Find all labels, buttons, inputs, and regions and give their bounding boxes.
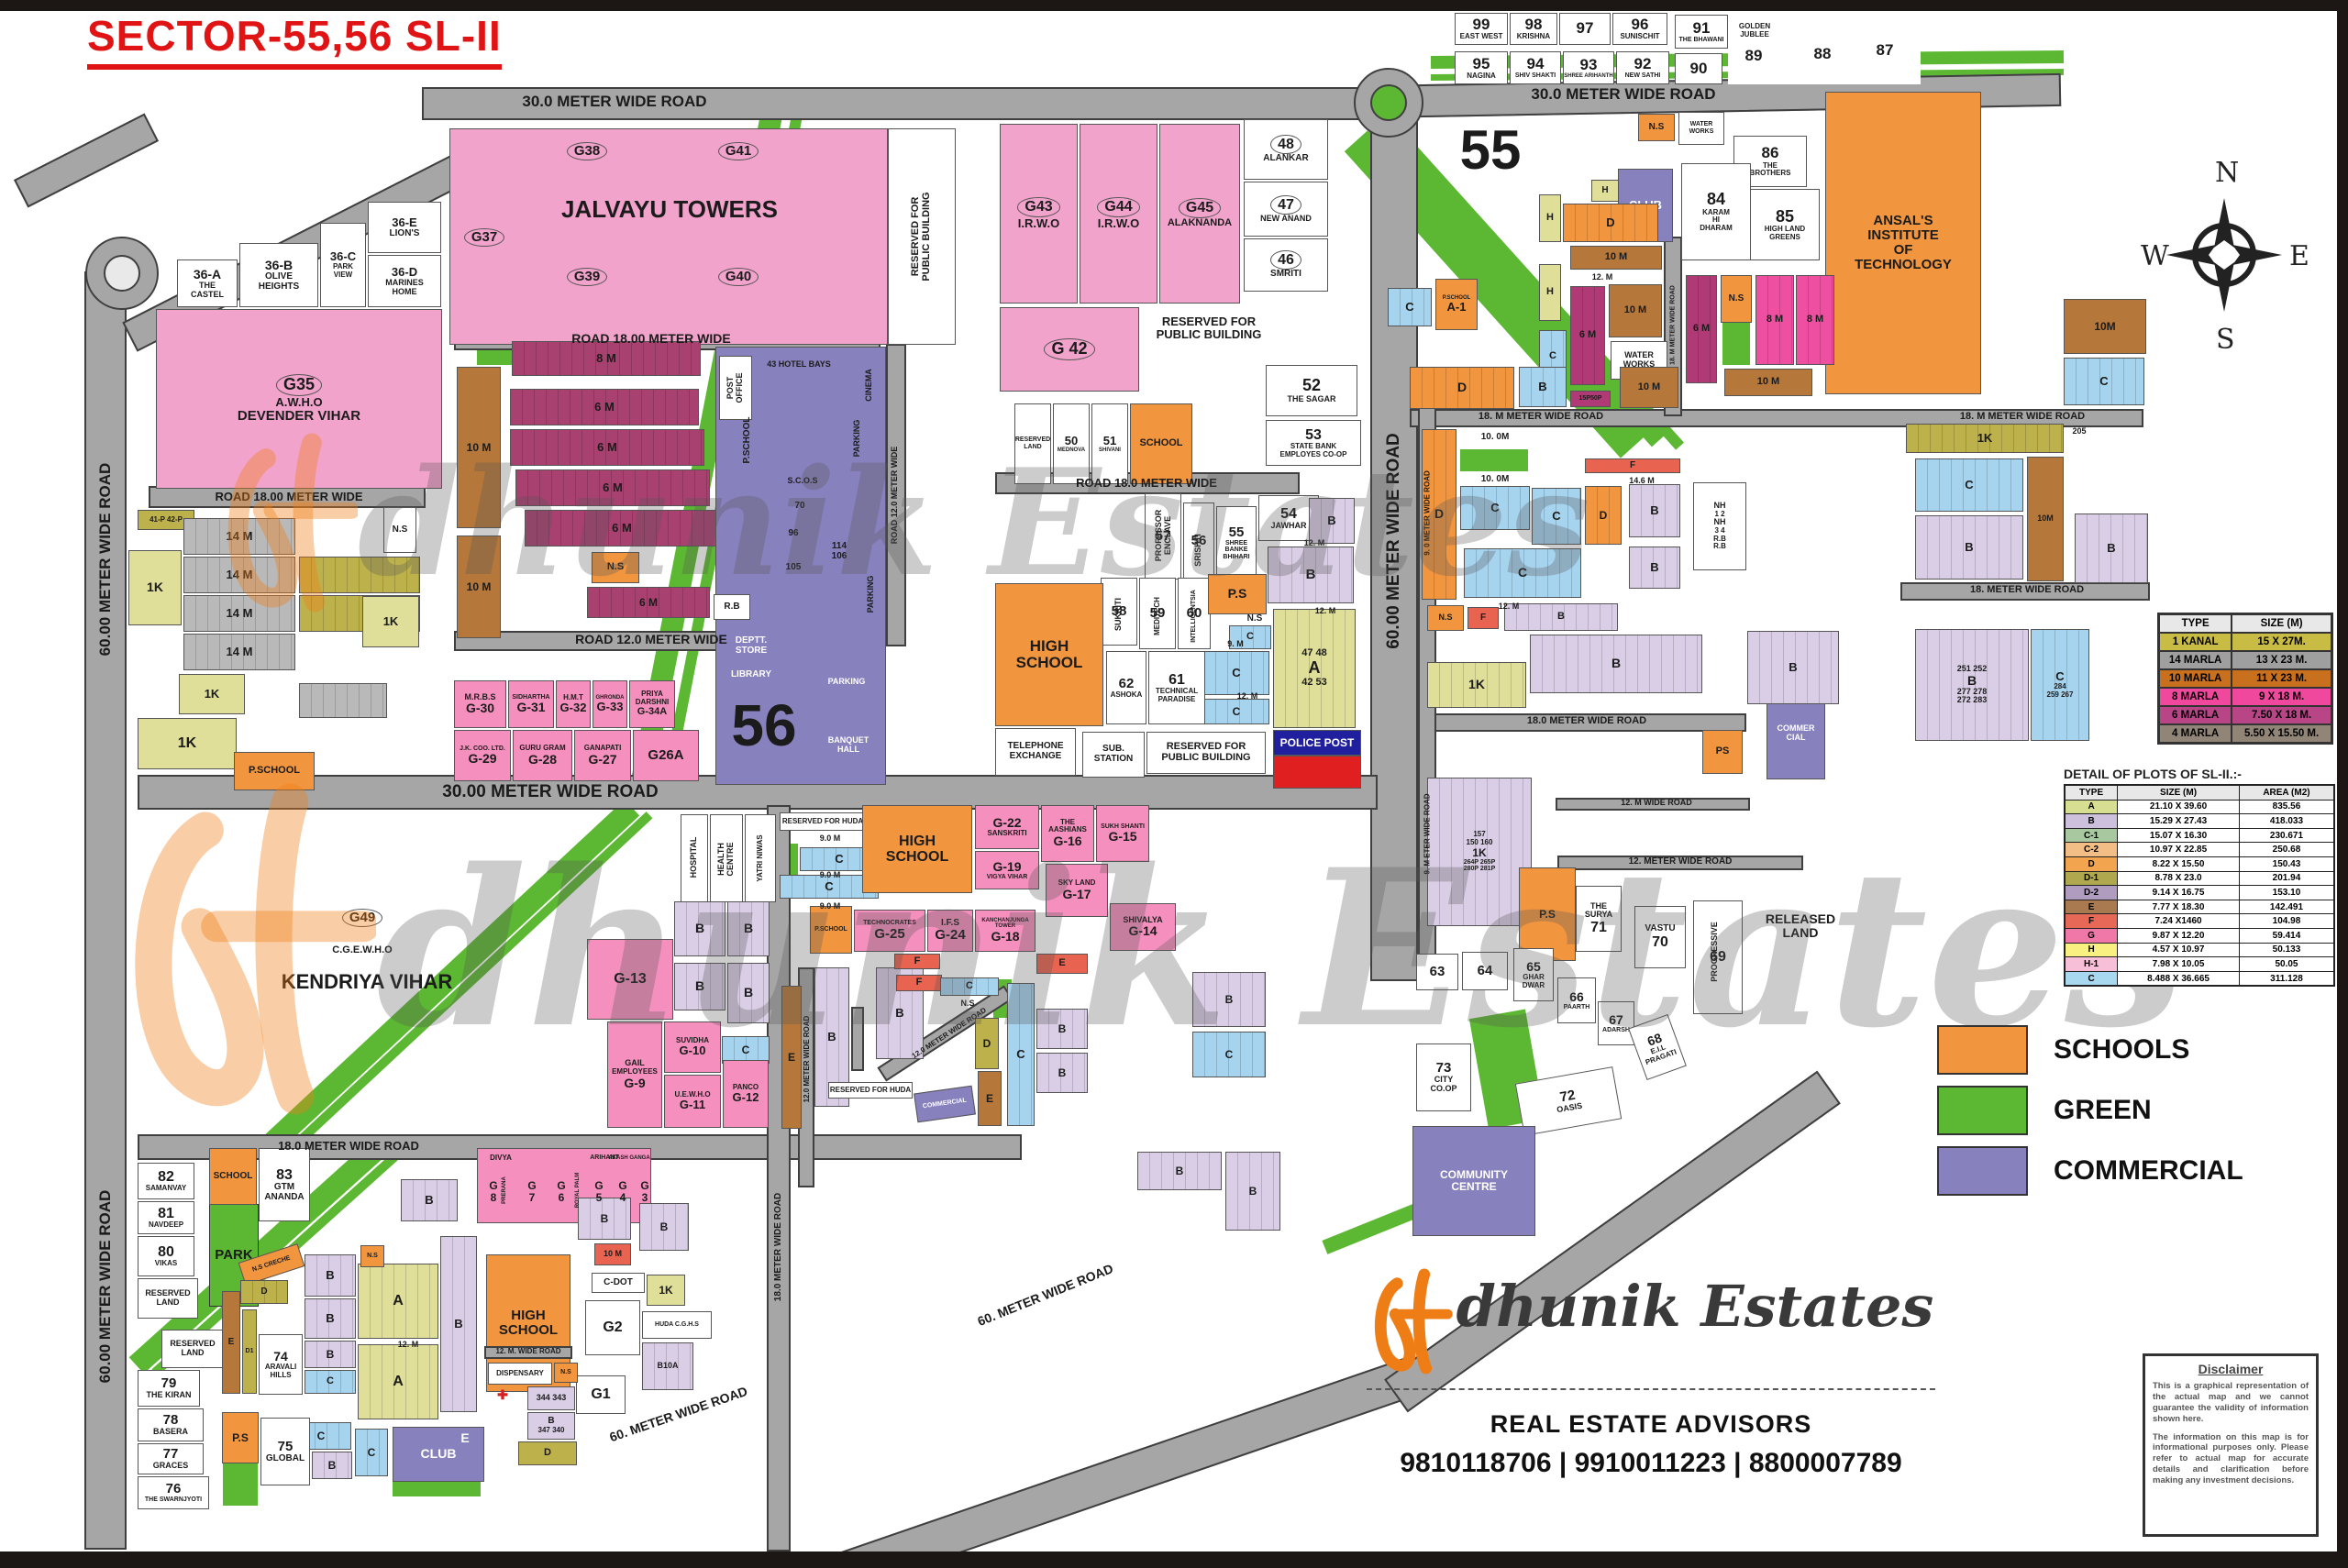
map-block: 1K	[179, 674, 245, 714]
map-block: E	[222, 1291, 240, 1394]
map-label: 60. METER WIDE ROAD	[940, 1246, 1151, 1345]
map-label: 9.0 M	[807, 833, 853, 845]
map-block: 91THE BHAWANI	[1675, 15, 1728, 49]
green-belt	[393, 1482, 481, 1496]
map-label: G4	[611, 1168, 635, 1216]
map-block: 94SHIV SHAKTI	[1510, 51, 1561, 84]
map-block: N.S	[1427, 605, 1464, 631]
map-block: C	[1915, 458, 2023, 512]
map-block: 61TECHNICALPARADISE	[1148, 651, 1205, 724]
map-block: 76THE SWARNJYOTI	[138, 1476, 209, 1509]
map-block: 10 M	[594, 1243, 631, 1265]
map-block: 46SMRITI	[1244, 238, 1328, 292]
map-block: 64	[1462, 952, 1508, 990]
map-label: G6	[548, 1168, 574, 1216]
map-label: PARKING	[864, 553, 879, 635]
map-label: 12. M	[1302, 605, 1348, 617]
map-block: E	[978, 1071, 1002, 1126]
map-block: 93SHREE ARIHANTH	[1563, 51, 1614, 84]
map-block: B	[674, 901, 725, 956]
map-block: 99EAST WEST	[1455, 13, 1508, 45]
map-block: A	[358, 1264, 438, 1339]
map-block: SHIVALYAG-14	[1110, 903, 1176, 951]
map-label: ROAD 18.00 METER WIDE	[165, 488, 413, 506]
map-block: 36-CPARKVIEW	[320, 223, 366, 307]
map-block: THEAASHIANSG-16	[1041, 805, 1094, 862]
map-label: 43 HOTEL BAYS	[758, 358, 840, 372]
map-block: N.S	[360, 1245, 384, 1267]
map-block: G-22SANSKRITI	[975, 805, 1039, 849]
map-block: 52THE SAGAR	[1266, 365, 1357, 416]
detail-table-row: D8.22 X 15.50150.43	[2065, 856, 2334, 871]
map-block: SCHOOL	[209, 1148, 257, 1205]
map-block: 10M	[2027, 457, 2064, 581]
map-label: RESERVED FORPUBLIC BUILDING	[896, 131, 947, 342]
map-block: J.K. COO. LTD.G-29	[454, 730, 511, 781]
kendriya-vihar-label: KENDRIYA VIHAR	[257, 968, 477, 996]
map-block: H	[1539, 264, 1561, 321]
map-block: N.S	[592, 552, 639, 583]
map-block: D	[975, 1018, 999, 1069]
map-block: 73CITYCO.OP	[1416, 1043, 1471, 1111]
map-block: SKY LANDG-17	[1046, 864, 1108, 917]
map-block: B	[305, 1254, 356, 1297]
svg-text:E: E	[2289, 240, 2309, 272]
map-block: 1K	[362, 596, 419, 647]
map-block: SUVIDHAG-10	[664, 1021, 721, 1073]
map-label: ROAD 12.0 METER WIDE	[514, 631, 789, 649]
map-label: 12.0 METER WIDE ROAD	[801, 986, 814, 1132]
map-block: 80VIKAS	[138, 1236, 194, 1276]
disclaimer-box: Disclaimer This is a graphical represent…	[2143, 1353, 2319, 1537]
map-block: 85HIGH LANDGREENS	[1750, 189, 1820, 260]
map-block: 10 M	[457, 536, 501, 638]
map-block: 92NEW SATHI	[1616, 51, 1669, 84]
compass-rose: N E S W	[2137, 145, 2311, 360]
map-block: H	[1539, 194, 1561, 242]
map-block: 10 M	[1570, 246, 1662, 270]
map-label: 89	[1735, 44, 1772, 68]
detail-table-row: F7.24 X1460104.98	[2065, 914, 2334, 929]
map-block: P.S	[1519, 867, 1576, 961]
map-block: H	[1591, 180, 1619, 202]
map-label: ROAD 18.00 METER WIDE	[514, 330, 789, 348]
map-block: P.S	[1208, 574, 1267, 614]
compass-east-arrow	[2232, 245, 2282, 265]
map-block: RESERVEDLAND	[161, 1330, 224, 1368]
map-label: 18. M METER WIDE ROAD	[1431, 410, 1651, 425]
map-block: G 42	[1000, 307, 1139, 392]
map-block: P.SCHOOLA-1	[1435, 279, 1478, 330]
map-block	[1370, 84, 1407, 121]
map-label: 10. 0M	[1467, 431, 1523, 444]
map-label: ROYAL PALM	[572, 1163, 583, 1218]
map-block: C	[1464, 548, 1581, 598]
map-label: SUKRITI	[1112, 573, 1126, 656]
map-block: B	[1192, 972, 1266, 1027]
map-block: 15P50P	[1570, 391, 1611, 407]
map-block: PS	[1702, 730, 1743, 774]
map-label: 12. M	[385, 1339, 431, 1352]
map-block: C-DOT	[592, 1273, 645, 1293]
community-centre-block: COMMUNITYCENTRE	[1412, 1126, 1535, 1236]
map-block: B	[2075, 513, 2148, 583]
map-block: SIDHARTHAG-31	[508, 680, 554, 728]
map-block: C	[1388, 288, 1432, 326]
map-block: RESERVED FORPUBLIC BUILDING	[1146, 732, 1266, 774]
map-block: GURU GRAMG-28	[513, 730, 572, 781]
map-block	[1273, 756, 1361, 789]
plot-detail-table: DETAIL OF PLOTS OF SL-II.:- TYPESIZE (M)…	[2064, 767, 2335, 987]
map-label: N.S	[1236, 613, 1273, 625]
map-block: A	[358, 1344, 438, 1419]
map-block: 6 M	[510, 429, 704, 466]
map-block: B	[1629, 547, 1680, 589]
map-block: 97	[1559, 13, 1611, 45]
map-block: TECHNOCRATESG-25	[854, 910, 925, 952]
map-block: C	[2064, 358, 2144, 405]
map-label: 18.0 METER WIDE ROAD	[220, 1137, 477, 1155]
map-block: HUDA C.G.H.S	[642, 1311, 712, 1339]
size-table-row: 6 MARLA7.50 X 18 M.	[2159, 706, 2332, 724]
map-block: B	[305, 1341, 356, 1368]
map-block: H.M.TG-32	[556, 680, 591, 728]
map-label: C.G.E.W.H.O	[312, 943, 413, 959]
brand-name: dhunik Estates	[1456, 1267, 1934, 1347]
phone-numbers: 9810118706 | 9910011223 | 8800007789	[1367, 1448, 1935, 1479]
map-label: PROGRESSIVE	[1708, 897, 1722, 1007]
map-label: 12. M	[1579, 271, 1625, 283]
map-block: RESERVEDLAND	[1014, 403, 1051, 484]
map-label: 12. M	[1220, 691, 1275, 702]
map-block: R.B	[714, 594, 750, 620]
size-table-row: 1 KANAL15 X 27M.	[2159, 633, 2332, 651]
map-block	[299, 557, 420, 593]
brand-block: dhunik Estates REAL ESTATE ADVISORS 9810…	[1367, 1267, 1935, 1479]
map-block: B	[305, 1298, 356, 1339]
map-label: 18. M METER WIDE ROAD	[1912, 410, 2132, 425]
map-block: P.SCHOOL	[810, 906, 852, 954]
map-block: 75GLOBAL	[260, 1418, 310, 1485]
map-label: 18. M METER WIDE ROAD	[1667, 261, 1679, 390]
map-block: B	[1629, 484, 1680, 537]
map-block: G2	[585, 1300, 640, 1355]
map-block: PANCOG-12	[723, 1060, 769, 1128]
map-block: 251 252B277 278272 283	[1915, 629, 2029, 741]
frame-bottom	[0, 1551, 2348, 1568]
legend-row-commercial: COMMERCIAL	[1937, 1146, 2243, 1196]
green-belt	[1722, 323, 1750, 365]
map-label: AKASH GANGA	[605, 1152, 653, 1165]
map-block: 90	[1675, 53, 1722, 84]
map-block: 48ALANKAR	[1244, 119, 1328, 180]
map-block: E	[1036, 954, 1088, 974]
map-block: G-13	[587, 939, 673, 1020]
map-label: 12. M	[1291, 537, 1337, 549]
map-block: B	[312, 1452, 352, 1479]
map-block: 65GHARDWAR	[1513, 948, 1554, 1001]
map-block: 14 M	[183, 518, 295, 555]
map-block: NH1 2NH3 4R.BR.B	[1693, 482, 1746, 570]
map-block: N.S	[554, 1363, 578, 1383]
map-block: KANCHANJUNGATOWERG-18	[975, 910, 1036, 952]
legend-row-schools: SCHOOLS	[1937, 1025, 2243, 1075]
map-block: C	[305, 1370, 356, 1394]
size-table-row: 10 MARLA11 X 23 M.	[2159, 669, 2332, 688]
map-block: B	[1225, 1152, 1280, 1231]
map-block: B	[1036, 1009, 1088, 1049]
map-block: 10 M	[457, 367, 501, 528]
map-block: 344 343	[527, 1386, 575, 1410]
map-block: G26A	[633, 730, 699, 781]
map-label: 12. M. WIDE ROAD	[486, 1346, 570, 1358]
disclaimer-title: Disclaimer	[2153, 1362, 2309, 1376]
disclaimer-paragraph-2: The information on this map is for infor…	[2153, 1432, 2309, 1486]
map-block: RESERVEDLAND	[138, 1278, 198, 1319]
map-block: 98KRISHNA	[1510, 13, 1557, 45]
map-label: 87	[1862, 37, 1908, 64]
commercial-swatch	[1937, 1146, 2028, 1196]
map-block: N.S	[1638, 114, 1675, 141]
map-label: 10. 0M	[1467, 473, 1523, 486]
map-label: PRERANA	[499, 1163, 510, 1218]
map-block: M.R.B.SG-30	[454, 680, 506, 728]
map-block: G44 I.R.W.O	[1080, 124, 1157, 304]
map-label: G41	[711, 136, 766, 167]
map-block: B	[727, 901, 770, 956]
map-block: D	[1563, 204, 1658, 242]
jalvayu-towers-block	[449, 128, 888, 345]
map-block: GAILEMPLOYEESG-9	[607, 1021, 662, 1128]
svg-text:S: S	[2216, 324, 2235, 356]
map-label: 12. M WIDE ROAD	[1574, 797, 1739, 810]
map-block: B347 340	[527, 1412, 575, 1440]
green-swatch	[1937, 1086, 2028, 1135]
map-label: 114106	[816, 539, 862, 565]
map-block: 157150 1601K264P 265P280P 281P	[1427, 778, 1532, 926]
adhunik-logo-icon	[1368, 1267, 1453, 1375]
map-label: 60.00 METER WIDE ROAD	[94, 1149, 117, 1424]
map-label: LIBRARY	[719, 668, 783, 682]
map-block: C	[1007, 983, 1035, 1126]
map-block: E	[781, 986, 802, 1129]
compass-south-arrow	[2214, 262, 2234, 312]
map-block: 66PAARTH	[1557, 977, 1596, 1023]
map-block: 68E.I.LPRAGATI	[1628, 1014, 1687, 1080]
map-label: YATRI NIWAS	[752, 817, 769, 900]
map-block: 67ADARSH	[1598, 1001, 1634, 1045]
map-block: 6 M	[515, 469, 710, 506]
map-label: 60.00 METER WIDE ROAD	[94, 422, 117, 697]
map-label: 18.0 METER WIDE ROAD	[770, 1169, 787, 1325]
map-block: 96SUNISCHIT	[1612, 13, 1667, 45]
map-block: 36-BOLIVEHEIGHTS	[239, 243, 318, 307]
map-block: 1K	[1427, 662, 1526, 708]
map-label: HEALTHCENTRE	[714, 818, 739, 900]
map-block: B10A	[642, 1342, 693, 1390]
advisors-line: REAL ESTATE ADVISORS	[1367, 1410, 1935, 1439]
map-block: GANAPATIG-27	[574, 730, 631, 781]
map-block: 79THE KIRAN	[138, 1370, 200, 1407]
map-label: 9.0 M	[807, 900, 853, 912]
map-block: C	[1460, 486, 1530, 530]
map-label: G49	[330, 901, 394, 934]
map-label: 14.6 M	[1614, 475, 1669, 487]
map-label: BANQUETHALL	[816, 732, 880, 759]
detail-table-row: E7.77 X 18.30142.491	[2065, 900, 2334, 914]
svg-text:N: N	[2215, 157, 2239, 189]
map-label: 105	[775, 561, 812, 574]
detail-table-row: D-29.14 X 16.75153.10	[2065, 886, 2334, 900]
map-block	[104, 255, 140, 292]
map-block: 47NEW ANAND	[1244, 182, 1328, 237]
map-label: 30.0 METER WIDE ROAD	[477, 90, 752, 114]
map-block: P.S	[222, 1412, 259, 1463]
map-block: 36-DMARINESHOME	[368, 255, 441, 307]
map-block: 10 M	[1609, 284, 1662, 337]
map-block: 8 M	[1796, 275, 1834, 365]
map-label: 30.0 METER WIDE ROAD	[1486, 83, 1761, 106]
map-block: B	[1268, 547, 1354, 603]
compass-north-arrow	[2214, 198, 2234, 248]
svg-text:W: W	[2141, 240, 2169, 272]
map-label: 60.00 METER WIDE ROAD	[1380, 403, 1408, 679]
map-label: G3	[633, 1168, 657, 1216]
green-belt	[223, 1463, 258, 1506]
green-belt	[1460, 449, 1528, 471]
map-block: 63	[1416, 954, 1458, 990]
map-label: 9.0 M	[807, 869, 853, 881]
map-label: 18. METER WIDE ROAD	[1917, 583, 2137, 598]
map-block: TELEPHONEEXCHANGE	[995, 728, 1076, 776]
map-block: N.S	[1721, 275, 1752, 323]
map-block: 50MEDNOVA	[1053, 403, 1090, 484]
map-block: 1K	[128, 550, 182, 625]
detail-table-row: C-115.07 X 16.30230.671	[2065, 828, 2334, 843]
sector-56-number: 56	[714, 688, 814, 765]
road-segment	[851, 1007, 864, 1071]
map-block: C	[1203, 699, 1269, 724]
map-block: 14 M	[183, 557, 295, 593]
map-block: 14 M	[183, 634, 295, 670]
map-block: G45 ALAKNANDA	[1159, 124, 1240, 304]
map-label: 205	[2066, 425, 2093, 438]
detail-table-row: C8.488 X 36.665311.128	[2065, 971, 2334, 986]
police-post: POLICE POST	[1273, 730, 1361, 756]
map-block: THESURYA71	[1576, 886, 1622, 952]
map-label: 30.00 METER WIDE ROAD	[385, 779, 715, 805]
map-block: C	[1203, 651, 1269, 695]
map-label: G5	[587, 1168, 611, 1216]
map-block: 6 M	[1570, 286, 1605, 385]
map-block: B	[1747, 631, 1839, 704]
map-block: G-19VIGYA VIHAR	[975, 851, 1039, 889]
map-block: 6 M	[510, 389, 699, 425]
map-block: GHRONDAG-33	[593, 680, 627, 728]
map-label: PARKING	[814, 675, 879, 690]
map-block: 10M	[2064, 299, 2146, 354]
frame-top	[0, 0, 2348, 11]
map-block: N.S	[383, 507, 416, 553]
map-block: U.E.W.H.OG-11	[664, 1075, 721, 1128]
map-block: B	[440, 1236, 477, 1412]
brand-divider	[1367, 1388, 1935, 1390]
disclaimer-paragraph-1: This is a graphical representation of th…	[2153, 1381, 2309, 1425]
map-block: 6 M	[587, 587, 710, 618]
map-block: B	[401, 1179, 458, 1221]
size-table-row: 14 MARLA13 X 23 M.	[2159, 651, 2332, 669]
map-block: VASTU70	[1634, 906, 1686, 968]
map-label: 96	[775, 527, 812, 540]
map-label: INTELLIGENTSIA	[1187, 570, 1202, 662]
map-label: 9. M ETER WIDE ROAD	[1423, 766, 1434, 903]
map-label: G40	[711, 261, 766, 293]
map-block: HIGHSCHOOL	[862, 805, 972, 893]
map-block: SUB.STATION	[1082, 732, 1145, 778]
map-block: B	[1519, 367, 1567, 407]
map-block: C284259 267	[2031, 629, 2089, 741]
map-block: 84KARAMHIDHARAM	[1681, 163, 1751, 260]
map-block: D1	[242, 1309, 257, 1394]
size-table-row: 8 MARLA9 X 18 M.	[2159, 688, 2332, 706]
map-label: RESERVED FORPUBLIC BUILDING	[1145, 310, 1273, 347]
map-block: C	[1192, 1032, 1266, 1077]
map-block: RESERVED FOR HUDA	[828, 1082, 913, 1099]
map-block: SUKH SHANTIG-15	[1096, 805, 1149, 862]
detail-table-row: B15.29 X 27.43418.033	[2065, 814, 2334, 829]
map-block: 14 M	[183, 595, 295, 632]
map-block: C	[940, 977, 999, 996]
map-label: S.C.O.S	[770, 475, 835, 488]
map-block: SCHOOL	[1130, 403, 1192, 484]
map-label: P.SCHOOL	[738, 390, 757, 491]
map-block: 53STATE BANKEMPLOYES CO-OP	[1266, 420, 1361, 466]
map-block: 83GTMANANDA	[259, 1148, 310, 1221]
map-block: DISPENSARY	[488, 1363, 552, 1385]
map-block: 81NAVDEEP	[138, 1201, 194, 1234]
map-block: D	[240, 1280, 288, 1304]
map-block: B	[1530, 635, 1702, 693]
map-block: G1	[576, 1375, 626, 1414]
map-block: 77GRACES	[138, 1443, 204, 1474]
schools-swatch	[1937, 1025, 2028, 1075]
map-label: 12. METER WIDE ROAD	[1570, 856, 1790, 868]
map-block: PRIYADARSHNIG-34A	[629, 680, 675, 728]
legend-row-green: GREEN	[1937, 1086, 2243, 1135]
sector-55-number: 55	[1435, 117, 1545, 183]
map-block: 82SAMANVAY	[138, 1163, 194, 1199]
map-block: B	[1915, 515, 2023, 580]
map-block: 95NAGINA	[1455, 51, 1508, 84]
map-block: WATERWORKS	[1678, 112, 1724, 145]
map-label: E	[451, 1429, 479, 1449]
map-block: B	[674, 963, 725, 1010]
map-block: 6 M	[525, 510, 719, 547]
map-block: B	[1036, 1053, 1088, 1093]
map-label: 9. M	[1213, 639, 1258, 650]
map-block: 1K	[1906, 424, 2064, 453]
map-block: D	[1410, 367, 1514, 409]
map-label: G7	[519, 1168, 545, 1216]
map-label: 12. M	[1486, 601, 1532, 613]
detail-table-title: DETAIL OF PLOTS OF SL-II.:-	[2064, 767, 2335, 781]
detail-table-row: A21.10 X 39.60835.56	[2065, 800, 2334, 814]
map-block: 55SHREEBANKEBHIHARI	[1216, 506, 1257, 580]
map-label: JALVAYU TOWERS	[532, 191, 807, 227]
map-label: G39	[559, 261, 615, 293]
map-block: 51SHIVANI	[1091, 403, 1128, 484]
map-label: 9. 0 METER WIDE ROAD	[1423, 445, 1434, 582]
